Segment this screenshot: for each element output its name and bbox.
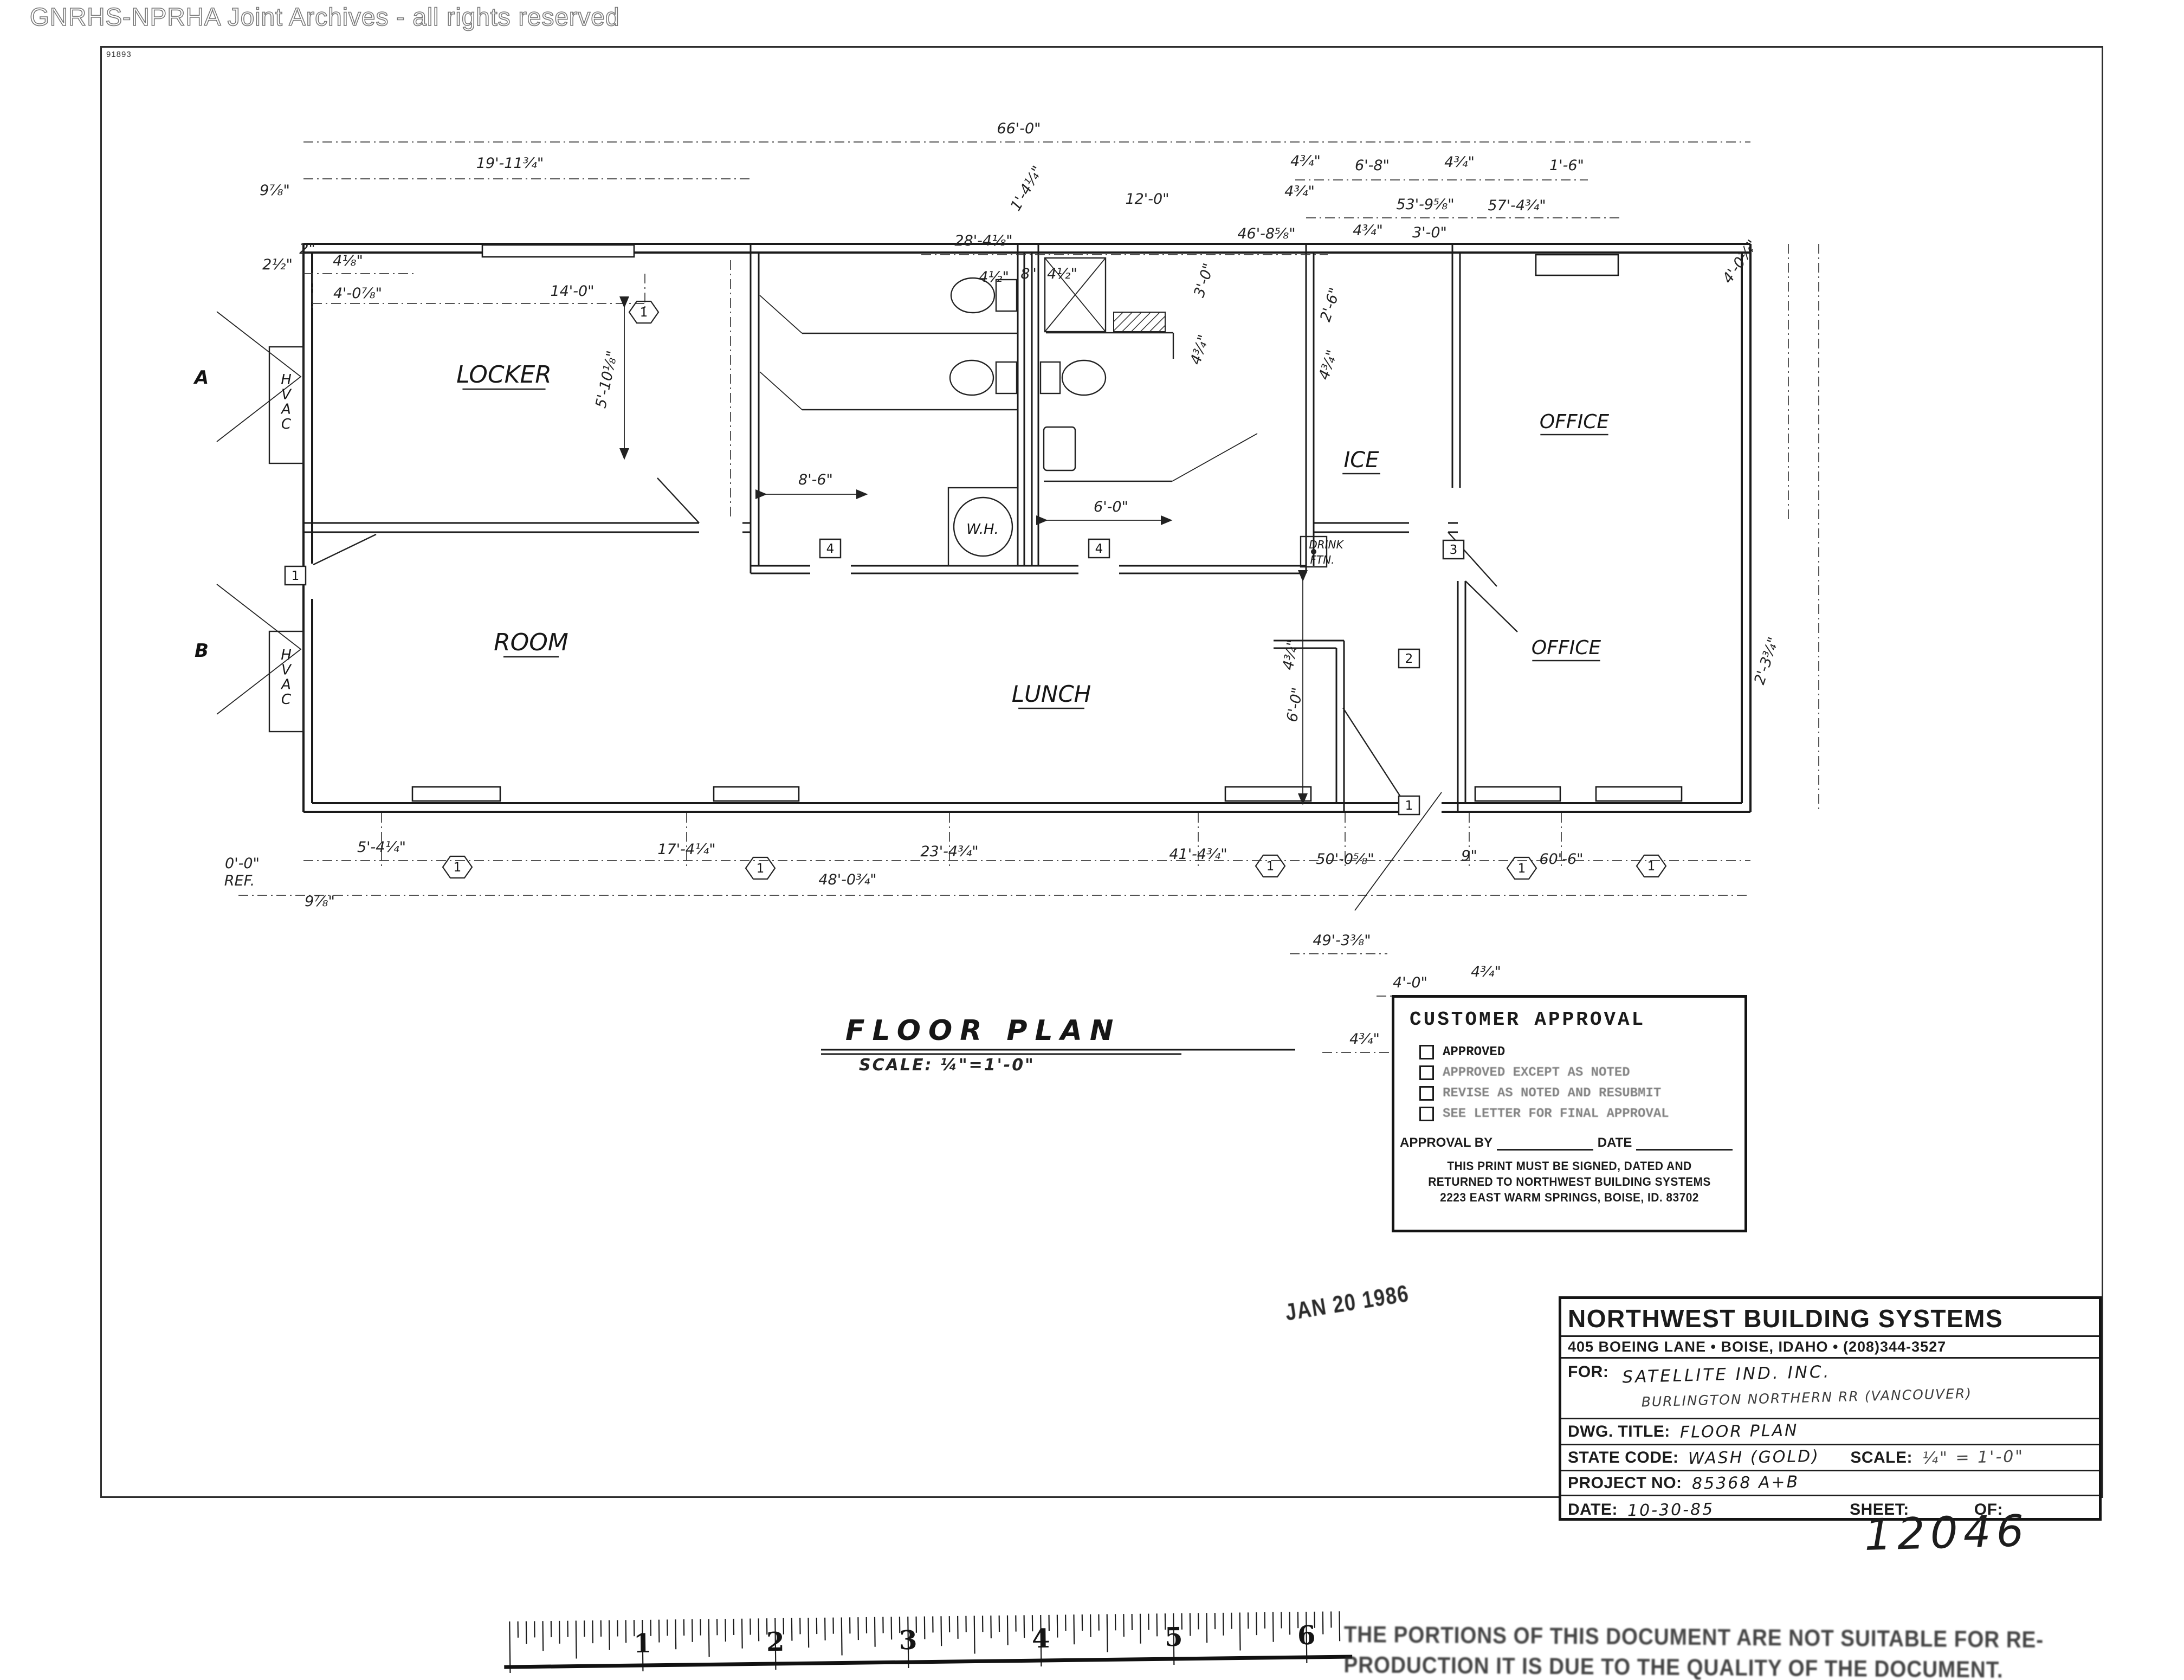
- ruler-tick: [592, 1620, 593, 1643]
- approval-title: CUSTOMER APPROVAL: [1410, 1009, 1744, 1031]
- floor-plan-title: FLOOR PLAN: [845, 1015, 1121, 1047]
- dimension-label: 41'-4¾": [1169, 846, 1227, 863]
- dimension-label: 4¾": [1316, 348, 1341, 382]
- tag-number: 1: [454, 861, 462, 875]
- dimension-label: 8'-6": [798, 471, 833, 488]
- ruler-tick: [1256, 1612, 1257, 1635]
- dimension-label: 5'-10⅛": [592, 350, 621, 410]
- ruler-tick: [543, 1621, 544, 1651]
- company-name: NORTHWEST BUILDING SYSTEMS: [1561, 1299, 2099, 1337]
- state-code-value: WASH (GOLD): [1688, 1447, 1820, 1468]
- ruler-tick: [1007, 1616, 1008, 1645]
- dimension-label: 6'-0": [1094, 499, 1128, 515]
- dimension-label: 57'-4¾": [1488, 197, 1546, 214]
- scale-value: ¼" = 1'-0": [1922, 1447, 2025, 1468]
- room-label: LOCKER: [456, 361, 552, 389]
- exterior-walls: [303, 244, 1750, 812]
- approval-date-label: DATE: [1598, 1135, 1632, 1151]
- ruler-tick: [1240, 1613, 1240, 1651]
- ruler-tick: [742, 1619, 742, 1649]
- ruler-tick: [825, 1618, 825, 1640]
- dimension-label: 49'-3⅜": [1313, 932, 1371, 949]
- floor-plan-title-underline: [821, 1050, 1295, 1054]
- scanned-sheet: GNRHS-NPRHA Joint Archives - all rights …: [0, 0, 2184, 1680]
- section-letter: B: [195, 640, 209, 662]
- tag-number: 1: [757, 862, 765, 876]
- room-label: HVAC: [280, 372, 292, 432]
- dimension-label: 4'-0⅞": [333, 285, 382, 302]
- ruler-tick: [792, 1618, 792, 1641]
- approval-option: REVISE AS NOTED AND RESUBMIT: [1419, 1086, 1744, 1101]
- dimension-label: 2": [299, 241, 315, 257]
- dimension-label: 23'-4¾": [920, 843, 978, 860]
- ruler-tick: [1339, 1611, 1340, 1641]
- ruler-number: 3: [899, 1625, 917, 1656]
- approval-option: APPROVED EXCEPT AS NOTED: [1419, 1065, 1744, 1080]
- section-letter: A: [193, 367, 209, 389]
- customer-approval-box: CUSTOMER APPROVAL APPROVEDAPPROVED EXCEP…: [1392, 995, 1747, 1232]
- approval-option-label: SEE LETTER FOR FINAL APPROVAL: [1443, 1107, 1669, 1121]
- approval-signature-row: APPROVAL BY DATE: [1400, 1135, 1737, 1151]
- handwritten-job-number: 12046: [1864, 1505, 2030, 1560]
- ruler-tick: [958, 1616, 958, 1639]
- approval-option: SEE LETTER FOR FINAL APPROVAL: [1419, 1107, 1744, 1121]
- ruler-tick: [659, 1620, 660, 1643]
- approval-option-label: APPROVED EXCEPT AS NOTED: [1443, 1065, 1630, 1080]
- ruler-tick: [891, 1617, 892, 1639]
- dimension-label: 19'-11¾": [476, 155, 544, 172]
- tag-number: 1: [1267, 860, 1275, 874]
- ruler-tick: [1024, 1615, 1025, 1638]
- tag-number: 1: [1405, 799, 1413, 813]
- tag-number: 3: [1450, 543, 1458, 557]
- dimension-label: 4¾": [1353, 222, 1383, 239]
- dimension-label: REF.: [224, 873, 255, 889]
- tag-number: 4: [826, 542, 835, 556]
- dimension-label: 2'-6": [1317, 286, 1343, 324]
- state-code-label: STATE CODE:: [1568, 1449, 1678, 1467]
- room-label: HVAC: [280, 647, 292, 708]
- tag-number: 2: [1405, 652, 1413, 666]
- room-label: OFFICE: [1540, 411, 1610, 433]
- dimension-label: 2'-3¾": [1751, 635, 1782, 687]
- tag-number: 1: [292, 569, 300, 583]
- dimension-label: 17'-4¼": [657, 841, 715, 858]
- scale-label: SCALE:: [1850, 1449, 1912, 1467]
- dimension-label: 2½": [262, 256, 293, 273]
- dimension-label: 4¾": [1290, 153, 1321, 170]
- bathroom-fixtures: [760, 258, 1327, 567]
- dimension-label: 1'-4¼": [1007, 163, 1046, 214]
- dimension-label: 4¾": [1444, 154, 1475, 171]
- dwg-title-value: FLOOR PLAN: [1680, 1421, 1799, 1442]
- checkbox-icon: [1419, 1107, 1434, 1121]
- room-label: ROOM: [494, 629, 568, 656]
- dimension-label: 28'-4⅛": [954, 232, 1012, 249]
- ruler-tick: [991, 1616, 991, 1638]
- dimension-label: 4¾": [1280, 638, 1302, 671]
- tag-number: 1: [1647, 860, 1656, 874]
- ruler-tick: [1090, 1614, 1091, 1637]
- ruler-tick: [1057, 1615, 1058, 1638]
- ruler-tick: [974, 1616, 975, 1654]
- ruler-tick: [692, 1619, 693, 1642]
- for-value-2: BURLINGTON NORTHERN RR (VANCOUVER): [1642, 1386, 1973, 1410]
- dimension-label: 14'-0": [550, 283, 594, 300]
- ruler-number: 6: [1297, 1620, 1316, 1651]
- ruler-tick: [725, 1619, 726, 1642]
- tag-number: 1: [640, 306, 648, 320]
- tag-number: 1: [1518, 862, 1526, 876]
- dimension-label: 60'-6": [1539, 851, 1583, 868]
- ruler-tick: [626, 1620, 626, 1643]
- dimension-label: 9⅞": [260, 182, 290, 199]
- ruler-tick: [676, 1619, 676, 1649]
- room-label: DRINK: [1309, 538, 1344, 551]
- ruler-tick: [1140, 1614, 1141, 1644]
- for-label: FOR:: [1568, 1363, 1608, 1381]
- dimension-label: 8": [1020, 266, 1037, 282]
- title-block: NORTHWEST BUILDING SYSTEMS 405 BOEING LA…: [1559, 1296, 2102, 1521]
- for-row: FOR: SATELLITE IND. INC. BURLINGTON NORT…: [1561, 1359, 2099, 1419]
- company-address: 405 BOEING LANE • BOISE, IDAHO • (208)34…: [1561, 1337, 2099, 1359]
- project-no-row: PROJECT NO: 85368 A+B: [1561, 1471, 2099, 1496]
- room-label: W.H.: [966, 521, 999, 538]
- ruler-tick: [576, 1620, 577, 1658]
- dimension-label: 4½": [1047, 266, 1077, 282]
- dimension-label: 12'-0": [1125, 191, 1169, 208]
- checkbox-icon: [1419, 1086, 1434, 1101]
- dimension-label: 9⅞": [305, 893, 335, 910]
- ruler-baseline: [504, 1657, 1352, 1667]
- dimension-label: 3'-0": [1191, 261, 1217, 299]
- dimension-label: 4⅛": [333, 253, 363, 269]
- ruler-tick: [1107, 1614, 1108, 1652]
- project-no-value: 85368 A+B: [1691, 1472, 1799, 1493]
- reproduction-disclaimer: THE PORTIONS OF THIS DOCUMENT ARE NOT SU…: [1343, 1619, 2076, 1680]
- approval-option-label: REVISE AS NOTED AND RESUBMIT: [1443, 1086, 1661, 1101]
- room-label: FTN.: [1310, 553, 1334, 566]
- dimension-label: 4¾": [1349, 1031, 1380, 1048]
- dimension-label: 53'-9⅝": [1396, 196, 1454, 213]
- dwg-title-row: DWG. TITLE: FLOOR PLAN: [1561, 1419, 2099, 1445]
- ruler-tick: [609, 1620, 610, 1650]
- ruler-tick: [759, 1618, 759, 1641]
- ruler-tick: [709, 1619, 709, 1657]
- dimension-label: 4'-0": [1393, 974, 1427, 991]
- dimension-label: 66'-0": [997, 120, 1041, 137]
- ruler-tick: [858, 1617, 858, 1640]
- dimension-label: 6'-8": [1355, 157, 1390, 174]
- checkbox-icon: [1419, 1065, 1434, 1080]
- approval-option-label: APPROVED: [1443, 1045, 1505, 1059]
- dimension-label: 4½": [979, 269, 1009, 286]
- date-label: DATE:: [1568, 1501, 1618, 1519]
- ruler-tick: [1290, 1612, 1290, 1634]
- interior-walls: [303, 244, 1517, 812]
- dimension-label: 4¾": [1187, 333, 1213, 367]
- project-no-label: PROJECT NO:: [1568, 1474, 1682, 1492]
- dimension-label: 9": [1461, 848, 1477, 864]
- ruler-tick: [1206, 1613, 1207, 1643]
- ruler-tick: [1190, 1613, 1191, 1636]
- room-label: LUNCH: [1012, 681, 1091, 707]
- dwg-title-label: DWG. TITLE:: [1568, 1423, 1670, 1441]
- dimension-label: 3'-0": [1412, 224, 1447, 241]
- approval-option: APPROVED: [1419, 1045, 1744, 1059]
- state-code-row: STATE CODE: WASH (GOLD) SCALE: ¼" = 1'-0…: [1561, 1445, 2099, 1471]
- approval-notice: THIS PRINT MUST BE SIGNED, DATED AND RET…: [1403, 1158, 1736, 1205]
- ruler-tick: [526, 1621, 527, 1644]
- heater: [1114, 312, 1165, 332]
- ruler-tick: [925, 1617, 925, 1639]
- ruler-tick: [875, 1617, 875, 1647]
- dimension-label: 4¾": [1284, 183, 1315, 200]
- dimension-label: 50'-0⅝": [1316, 851, 1374, 868]
- approval-options: APPROVEDAPPROVED EXCEPT AS NOTEDREVISE A…: [1419, 1045, 1744, 1121]
- ruler-number: 2: [766, 1627, 785, 1657]
- photographed-ruler: 123456: [503, 1611, 1352, 1673]
- dimension-label: 0'-0": [225, 855, 260, 872]
- for-value-1: SATELLITE IND. INC.: [1622, 1359, 1972, 1387]
- approval-by-label: APPROVAL BY: [1400, 1135, 1492, 1151]
- ruler-tick: [1273, 1612, 1274, 1642]
- date-value: 10-30-85: [1627, 1500, 1715, 1520]
- ruler-number: 5: [1165, 1622, 1183, 1652]
- dimension-label: 1'-6": [1549, 157, 1584, 174]
- checkbox-icon: [1419, 1045, 1434, 1059]
- dimension-label: 4¾": [1471, 964, 1501, 980]
- ruler-tick: [809, 1618, 809, 1647]
- ruler-tick: [941, 1616, 941, 1646]
- dimension-label: 48'-0¾": [818, 871, 876, 888]
- ruler-tick: [1123, 1614, 1124, 1637]
- ruler-tick: [1323, 1612, 1323, 1634]
- tag-number: 4: [1095, 542, 1103, 556]
- signature-line: [1497, 1136, 1593, 1151]
- ruler-tick: [1223, 1613, 1224, 1636]
- ruler-number: 4: [1032, 1624, 1050, 1654]
- ruler-number: 1: [634, 1629, 652, 1659]
- ruler-tick: [559, 1621, 560, 1644]
- dimension-label: 46'-8⅝": [1237, 225, 1295, 242]
- room-label: ICE: [1344, 448, 1380, 473]
- ruler-tick: [842, 1618, 842, 1656]
- ruler-tick: [1157, 1613, 1158, 1636]
- date-line: [1636, 1136, 1733, 1151]
- room-label: OFFICE: [1532, 637, 1601, 659]
- floor-plan-scale: SCALE: ¼"=1'-0": [859, 1056, 1035, 1075]
- sink: [1044, 427, 1075, 470]
- dimension-label: 5'-4¼": [357, 839, 406, 856]
- ruler-tick: [1074, 1614, 1074, 1644]
